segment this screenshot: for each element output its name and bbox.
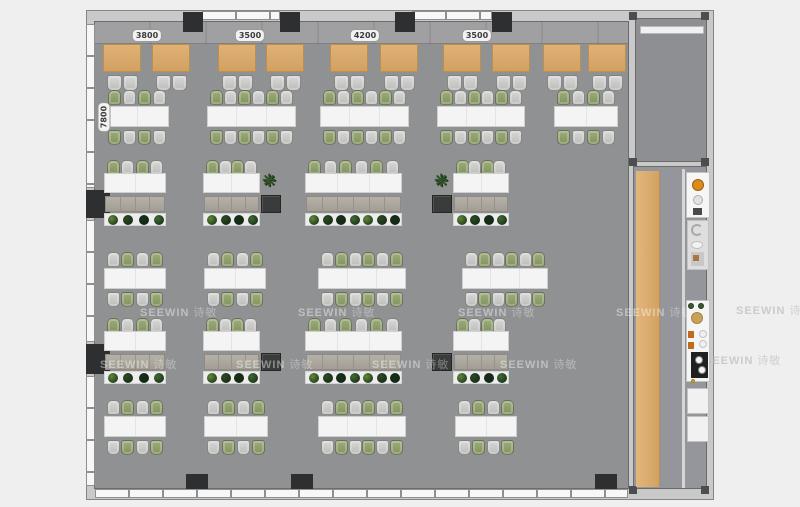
table-segment [456, 417, 487, 436]
office-chair [266, 130, 279, 145]
booth-chair [608, 75, 623, 91]
dimension-label-top: 4200 [350, 29, 380, 42]
pantry-item [699, 340, 707, 348]
table-segment [482, 332, 509, 350]
table-segment [236, 269, 266, 288]
booth-table [492, 44, 530, 72]
office-chair [337, 130, 350, 145]
table-segment [267, 107, 295, 126]
booth-chair [350, 75, 365, 91]
pantry-item [691, 312, 703, 324]
planter-plant [234, 215, 244, 225]
table-segment [370, 332, 401, 350]
office-chair [210, 130, 223, 145]
table-segment [306, 174, 338, 192]
pantry-item [699, 330, 707, 338]
watermark: SEEWIN诗敏 [616, 304, 693, 320]
planter-plant [123, 373, 133, 383]
watermark: SEEWIN诗敏 [236, 356, 313, 372]
pantry-item [698, 303, 704, 309]
table-segment [105, 417, 136, 436]
watermark-cjk: 诗敏 [553, 359, 577, 371]
bench-desk [318, 416, 406, 437]
office-chair [222, 440, 235, 455]
office-chair [210, 90, 223, 105]
office-chair [280, 90, 293, 105]
cabinet-run [306, 196, 401, 212]
table-segment [136, 332, 166, 350]
bench-desk [455, 416, 517, 437]
office-chair [362, 252, 375, 267]
office-chair [236, 292, 249, 307]
office-chair [121, 440, 134, 455]
table-segment [467, 107, 496, 126]
planter-box [203, 371, 260, 384]
planter-plant [336, 373, 346, 383]
booth-table [266, 44, 304, 72]
planter-plant [221, 215, 231, 225]
planter-plant [108, 215, 118, 225]
table-segment [338, 174, 370, 192]
watermark-brand: SEEWIN [616, 307, 665, 319]
booth-chair [563, 75, 578, 91]
booth-chair [172, 75, 187, 91]
office-chair [468, 130, 481, 145]
table-segment [555, 107, 587, 126]
pantry-item [691, 379, 695, 383]
booth-chair [107, 75, 122, 91]
bench-desk [462, 268, 548, 289]
cabinet [370, 197, 386, 211]
cabinet [246, 197, 259, 211]
furniture-layer: ❋❋SEEWIN诗敏SEEWIN诗敏SEEWIN诗敏SEEWIN诗敏SEEWIN… [0, 0, 800, 507]
planter-plant [377, 373, 387, 383]
office-chair [252, 130, 265, 145]
office-chair [150, 400, 163, 415]
planter-box [305, 213, 402, 226]
cabinet [205, 355, 219, 369]
office-chair [376, 440, 389, 455]
office-chair [280, 130, 293, 145]
planter-plant [484, 215, 494, 225]
bench-desk [320, 106, 409, 127]
cabinet [121, 197, 136, 211]
planter-plant [207, 215, 217, 225]
office-chair [393, 130, 406, 145]
floor-plan-image: ❋❋SEEWIN诗敏SEEWIN诗敏SEEWIN诗敏SEEWIN诗敏SEEWIN… [0, 0, 800, 507]
booth-chair [592, 75, 607, 91]
planter-plant [154, 373, 164, 383]
office-chair [454, 90, 467, 105]
table-segment [348, 417, 377, 436]
cabinet [385, 197, 400, 211]
office-chair [222, 400, 235, 415]
office-chair [440, 130, 453, 145]
booth-chair [384, 75, 399, 91]
office-chair [237, 440, 250, 455]
office-chair [557, 130, 570, 145]
table-segment [105, 332, 136, 350]
cabinet [468, 197, 481, 211]
office-chair [468, 90, 481, 105]
table-segment [136, 174, 166, 192]
table-segment [348, 269, 377, 288]
planter-plant [123, 215, 133, 225]
pantry-basin [691, 241, 703, 249]
pantry-appliance [693, 208, 702, 215]
table-segment [237, 107, 266, 126]
office-chair [481, 90, 494, 105]
office-chair [478, 252, 491, 267]
office-chair [440, 90, 453, 105]
office-chair [224, 90, 237, 105]
watermark: SEEWIN诗敏 [458, 304, 535, 320]
booth-table [152, 44, 190, 72]
pantry-item [698, 366, 706, 374]
table-segment [377, 269, 405, 288]
watermark-cjk: 诗敏 [425, 359, 449, 371]
office-chair [153, 130, 166, 145]
table-segment [587, 107, 618, 126]
office-chair [250, 292, 263, 307]
bench-desk [104, 268, 166, 289]
office-chair [351, 90, 364, 105]
booth-chair [496, 75, 511, 91]
office-chair [108, 90, 121, 105]
office-chair [390, 252, 403, 267]
booth-table [588, 44, 626, 72]
table-segment [377, 417, 405, 436]
office-chair [121, 252, 134, 267]
planter-plant [234, 373, 244, 383]
potted-plant: ❋ [262, 172, 280, 190]
office-chair [509, 90, 522, 105]
booth-table [330, 44, 368, 72]
cabinet [338, 355, 354, 369]
table-segment [454, 174, 482, 192]
office-chair [557, 90, 570, 105]
table-segment [232, 332, 259, 350]
booth-chair [512, 75, 527, 91]
dimension-label-top: 3800 [132, 29, 162, 42]
watermark-brand: SEEWIN [298, 307, 347, 319]
cabinet [468, 355, 481, 369]
planter-plant [139, 373, 149, 383]
table-segment [232, 174, 259, 192]
office-chair [454, 130, 467, 145]
office-chair [107, 440, 120, 455]
pantry-item [688, 303, 694, 309]
table-segment [520, 269, 547, 288]
office-chair [365, 90, 378, 105]
office-chair [207, 252, 220, 267]
office-chair [390, 400, 403, 415]
watermark-brand: SEEWIN [736, 305, 785, 317]
cabinet [136, 197, 151, 211]
watermark: SEEWIN诗敏 [500, 356, 577, 372]
planter-plant [363, 215, 373, 225]
office-chair [376, 400, 389, 415]
planter-plant [390, 215, 400, 225]
office-chair [236, 252, 249, 267]
office-chair [123, 130, 136, 145]
booth-chair [463, 75, 478, 91]
planter-plant [139, 215, 149, 225]
work-desk [305, 331, 402, 351]
planter-box [104, 213, 166, 226]
office-chair [501, 440, 514, 455]
office-chair [572, 130, 585, 145]
office-chair [379, 90, 392, 105]
office-chair [321, 252, 334, 267]
work-desk [305, 173, 402, 193]
office-chair [362, 440, 375, 455]
office-chair [376, 252, 389, 267]
office-chair [107, 400, 120, 415]
potted-plant: ❋ [434, 172, 452, 190]
table-segment [321, 107, 350, 126]
table-segment [319, 417, 348, 436]
office-chair [238, 130, 251, 145]
booth-table [543, 44, 581, 72]
planter-plant [154, 215, 164, 225]
storage-cabinet [261, 195, 281, 213]
watermark: SEEWIN诗敏 [100, 356, 177, 372]
table-segment [487, 417, 517, 436]
planter-plant [309, 215, 319, 225]
booth-table [218, 44, 256, 72]
office-chair [335, 440, 348, 455]
office-chair [376, 292, 389, 307]
cabinet [495, 197, 507, 211]
cabinet-run [454, 196, 508, 212]
office-chair [138, 130, 151, 145]
table-segment [491, 269, 519, 288]
planter-plant [108, 373, 118, 383]
office-chair [390, 292, 403, 307]
office-chair [505, 252, 518, 267]
table-segment [350, 107, 379, 126]
table-segment [136, 269, 166, 288]
watermark-cjk: 诗敏 [289, 359, 313, 371]
planter-plant [350, 373, 360, 383]
office-chair [587, 90, 600, 105]
office-chair [321, 400, 334, 415]
office-chair [121, 400, 134, 415]
booth-chair [447, 75, 462, 91]
office-chair [323, 130, 336, 145]
work-desk [453, 331, 509, 351]
bench-desk [207, 106, 296, 127]
watermark-brand: SEEWIN [704, 355, 753, 367]
planter-plant [221, 373, 231, 383]
cabinet [482, 355, 495, 369]
office-chair [136, 252, 149, 267]
office-chair [501, 400, 514, 415]
office-chair [207, 440, 220, 455]
cabinet [307, 197, 323, 211]
office-chair [323, 90, 336, 105]
table-segment [463, 269, 491, 288]
bench-desk [437, 106, 525, 127]
work-desk [203, 331, 260, 351]
table-segment [204, 174, 232, 192]
booth-chair [270, 75, 285, 91]
office-chair [335, 400, 348, 415]
planter-plant [470, 373, 480, 383]
booth-table [380, 44, 418, 72]
cabinet [106, 197, 121, 211]
planter-box [203, 213, 260, 226]
booth-chair [123, 75, 138, 91]
watermark-brand: SEEWIN [458, 307, 507, 319]
office-chair [250, 252, 263, 267]
bench-desk [204, 268, 266, 289]
table-segment [306, 332, 338, 350]
planter-box [453, 371, 509, 384]
table-segment [482, 174, 509, 192]
office-chair [138, 90, 151, 105]
office-chair [587, 130, 600, 145]
planter-plant [497, 373, 507, 383]
planter-box [104, 371, 166, 384]
office-chair [602, 130, 615, 145]
office-chair [108, 130, 121, 145]
office-chair [393, 90, 406, 105]
pantry-fixture [691, 224, 703, 236]
office-chair [221, 292, 234, 307]
office-chair [237, 400, 250, 415]
planter-plant [350, 215, 360, 225]
watermark-brand: SEEWIN [140, 307, 189, 319]
office-chair [123, 90, 136, 105]
office-chair [266, 90, 279, 105]
office-chair [362, 400, 375, 415]
work-desk [104, 331, 166, 351]
planter-plant [390, 373, 400, 383]
office-chair [365, 130, 378, 145]
office-chair [532, 252, 545, 267]
table-segment [319, 269, 348, 288]
watermark: SEEWIN诗敏 [704, 352, 781, 368]
office-chair [572, 90, 585, 105]
planter-plant [248, 215, 258, 225]
office-chair [472, 440, 485, 455]
table-segment [237, 417, 268, 436]
office-chair [321, 440, 334, 455]
pantry-item [693, 195, 703, 205]
booth-chair [334, 75, 349, 91]
cabinet [219, 355, 233, 369]
table-segment [105, 269, 136, 288]
bench-desk [105, 106, 169, 127]
work-desk [453, 173, 509, 193]
work-desk [104, 173, 166, 193]
office-chair [153, 90, 166, 105]
office-chair [390, 440, 403, 455]
office-chair [495, 130, 508, 145]
office-chair [252, 90, 265, 105]
office-chair [121, 292, 134, 307]
office-chair [495, 90, 508, 105]
watermark-brand: SEEWIN [236, 359, 285, 371]
watermark-cjk: 诗敏 [193, 307, 217, 319]
bench-desk [318, 268, 406, 289]
booth-chair [222, 75, 237, 91]
cabinet [150, 197, 164, 211]
planter-plant [457, 373, 467, 383]
booth-table [103, 44, 141, 72]
cabinet [455, 197, 468, 211]
pantry-item [695, 356, 703, 364]
office-chair [509, 130, 522, 145]
table-segment [338, 332, 370, 350]
table-segment [205, 417, 237, 436]
planter-plant [377, 215, 387, 225]
pantry-appliance [688, 342, 694, 349]
pantry-appliance [688, 331, 694, 338]
office-chair [150, 440, 163, 455]
office-chair [335, 252, 348, 267]
office-chair [465, 252, 478, 267]
office-chair [349, 252, 362, 267]
booth-chair [286, 75, 301, 91]
cabinet-run [105, 196, 165, 212]
table-segment [105, 174, 136, 192]
office-chair [519, 252, 532, 267]
office-chair [107, 252, 120, 267]
cabinet [323, 355, 339, 369]
office-chair [487, 440, 500, 455]
watermark-cjk: 诗敏 [511, 307, 535, 319]
table-segment [380, 107, 408, 126]
planter-plant [484, 373, 494, 383]
booth-chair [400, 75, 415, 91]
planter-plant [336, 215, 346, 225]
dimension-label-left: 7800 [98, 102, 111, 132]
table-segment [208, 107, 237, 126]
pantry-cabinet [687, 388, 709, 414]
work-desk [203, 173, 260, 193]
table-segment [496, 107, 524, 126]
watermark: SEEWIN诗敏 [372, 356, 449, 372]
booth-chair [156, 75, 171, 91]
table-segment [138, 107, 169, 126]
cabinet-run [204, 196, 259, 212]
watermark-cjk: 诗敏 [789, 305, 800, 317]
dimension-label-top: 3500 [235, 29, 265, 42]
office-chair [458, 400, 471, 415]
table-segment [106, 107, 138, 126]
planter-plant [470, 215, 480, 225]
watermark-brand: SEEWIN [500, 359, 549, 371]
office-chair [150, 252, 163, 267]
cabinet [338, 197, 354, 211]
office-chair [492, 252, 505, 267]
office-chair [207, 400, 220, 415]
dimension-label-top: 3500 [462, 29, 492, 42]
planter-box [453, 213, 509, 226]
bench-desk [554, 106, 618, 127]
watermark-cjk: 诗敏 [757, 355, 781, 367]
table-segment [438, 107, 467, 126]
booth-table [443, 44, 481, 72]
table-segment [136, 417, 166, 436]
planter-plant [248, 373, 258, 383]
planter-plant [323, 373, 333, 383]
pantry-item [692, 179, 704, 191]
cabinet [455, 355, 468, 369]
